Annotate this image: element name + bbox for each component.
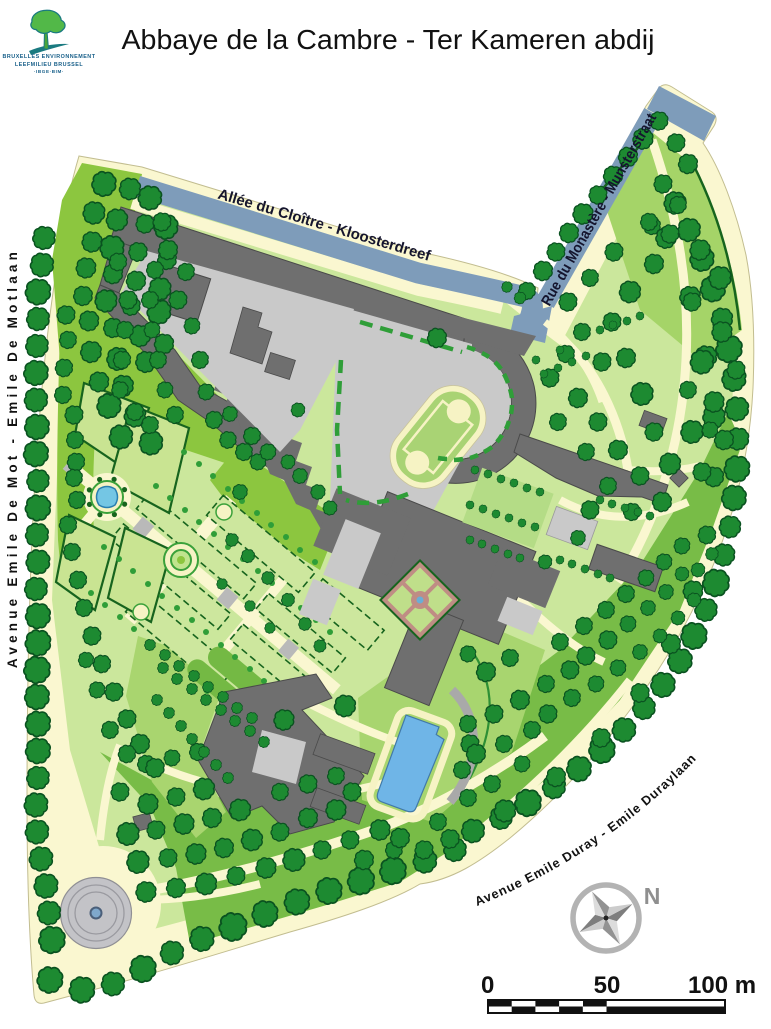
svg-text:0: 0 (481, 972, 494, 999)
svg-text:100 m: 100 m (688, 972, 756, 999)
svg-text:Abbaye de la Cambre - Ter Kame: Abbaye de la Cambre - Ter Kameren abdij (122, 24, 655, 55)
svg-text:BRUXELLES ENVIRONNEMENT: BRUXELLES ENVIRONNEMENT (3, 54, 96, 60)
svg-text:N: N (644, 883, 661, 909)
svg-text:Avenue Emile De Mot - Emile De: Avenue Emile De Mot - Emile De Motlaan (5, 248, 20, 668)
svg-text:LEEFMILIEU BRUSSEL: LEEFMILIEU BRUSSEL (15, 62, 84, 68)
svg-text:·IBGE·BIM·: ·IBGE·BIM· (34, 69, 64, 74)
svg-text:50: 50 (594, 972, 621, 999)
